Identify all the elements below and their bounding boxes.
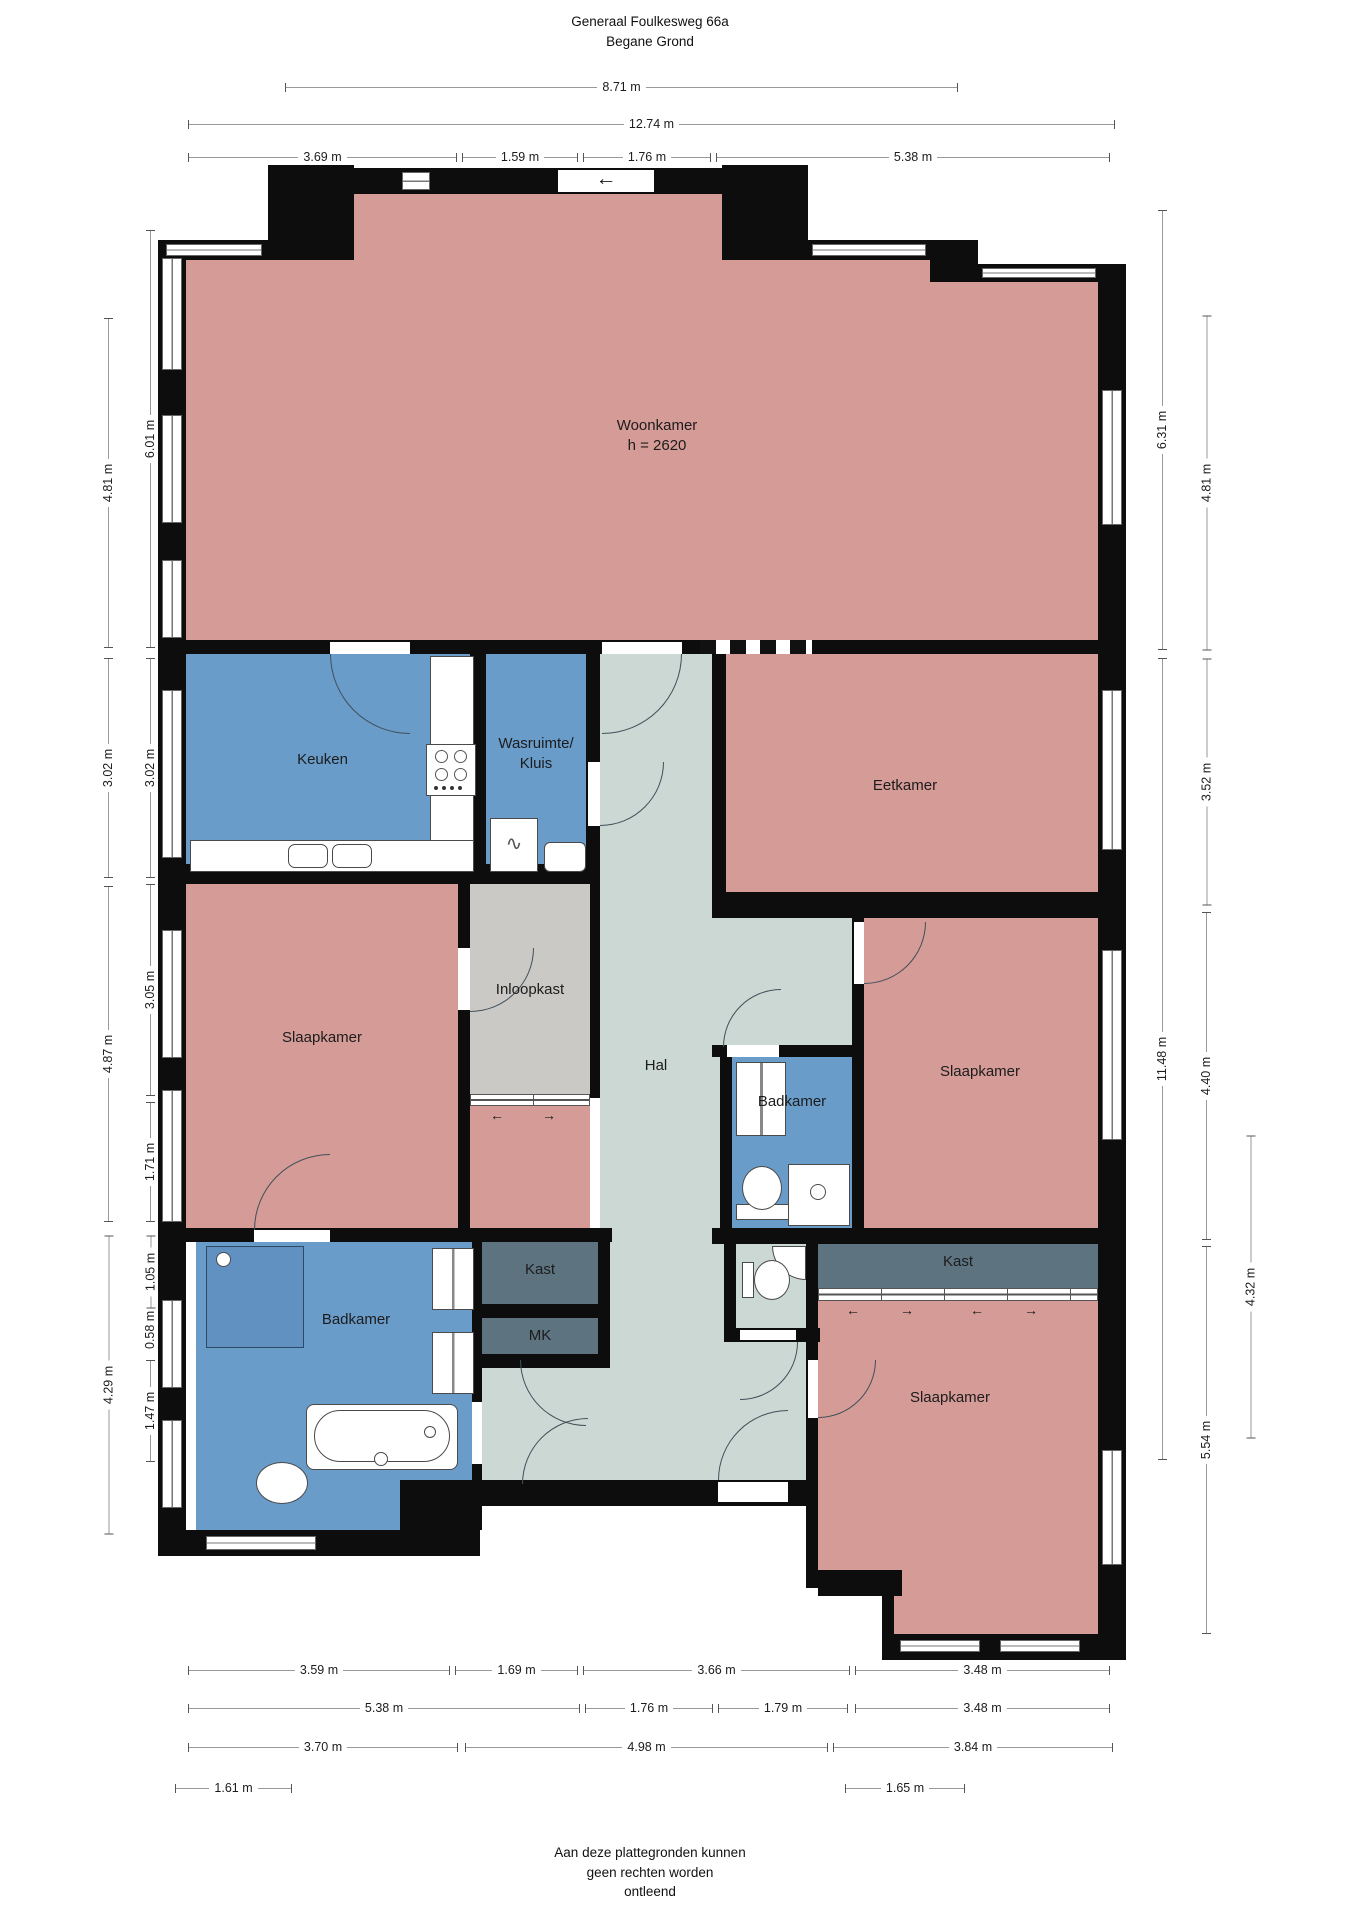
- dimension-right_inner-1: 11.48 m: [1154, 658, 1170, 1460]
- door-gap: [808, 1360, 818, 1418]
- dimension-bottom_row3-1: 4.98 m: [465, 1739, 828, 1755]
- window: [812, 244, 926, 256]
- dimension-left_outer-0: 4.81 m: [100, 318, 116, 648]
- wall: [186, 1228, 612, 1242]
- window: [162, 258, 182, 370]
- open-divider: [700, 640, 812, 654]
- sliding-door-rail: [818, 1288, 1098, 1301]
- wall: [482, 1304, 598, 1318]
- dimension-bottom_row4-1: 1.65 m: [845, 1780, 965, 1796]
- dimension-bottom_row1-0: 3.59 m: [188, 1662, 450, 1678]
- wall: [268, 165, 354, 260]
- window: [162, 690, 182, 858]
- window: [162, 1420, 182, 1508]
- dimension-right_outer-1: 3.52 m: [1198, 658, 1214, 905]
- door-gap: [602, 642, 682, 654]
- footer-disclaimer: Aan deze plattegronden kunnen geen recht…: [400, 1843, 900, 1902]
- toilet-fixture: [754, 1260, 790, 1300]
- wall: [712, 892, 1098, 918]
- dimension-bottom_row4-0: 1.61 m: [175, 1780, 292, 1796]
- room-label-hal: Hal: [616, 1056, 696, 1076]
- dimension-right_outer-0: 4.81 m: [1198, 315, 1214, 650]
- sink-fixture: [332, 844, 372, 868]
- window: [206, 1536, 316, 1550]
- room-closet-niche: [470, 1104, 590, 1228]
- dimension-right_outer-2: 4.40 m: [1198, 912, 1214, 1240]
- dimension-left_inner-2: 3.05 m: [142, 884, 158, 1096]
- stove-burners: [434, 750, 468, 781]
- shower-head-icon: [216, 1252, 231, 1267]
- wall: [400, 1480, 480, 1556]
- faucet-icon: [374, 1452, 388, 1466]
- stove-knobs: [434, 786, 462, 790]
- window: [1102, 950, 1122, 1140]
- dimension-top-2: 3.69 m: [188, 149, 457, 165]
- shower-head-icon: [810, 1184, 826, 1200]
- dimension-bottom_row2-0: 5.38 m: [188, 1700, 580, 1716]
- wall: [724, 1242, 736, 1330]
- window: [162, 1090, 182, 1222]
- window: [402, 172, 430, 190]
- dimension-left_outer-3: 4.29 m: [100, 1235, 116, 1534]
- slide-arrow-right-icon: →: [536, 1108, 562, 1122]
- sliding-door-rail: [470, 1094, 590, 1106]
- room-label-mk: MK: [482, 1326, 598, 1346]
- dimension-left_inner-1: 3.02 m: [142, 658, 158, 878]
- room-label-eetkamer: Eetkamer: [830, 776, 980, 796]
- title-address: Generaal Foulkesweg 66a: [571, 14, 729, 29]
- wall: [930, 240, 978, 282]
- slide-arrow-left-icon: ←: [484, 1108, 510, 1122]
- window: [162, 415, 182, 523]
- room-woonkamer-entry: [352, 192, 722, 256]
- door-gap: [472, 1402, 482, 1464]
- dimension-left_outer-1: 3.02 m: [100, 658, 116, 878]
- wall: [598, 1242, 610, 1362]
- dimension-bottom_row2-2: 1.79 m: [718, 1700, 848, 1716]
- title-floor: Begane Grond: [606, 34, 694, 49]
- room-label-badkamer-mid: Badkamer: [727, 1092, 857, 1112]
- door-gap: [740, 1330, 796, 1340]
- room-label-badkamer-left: Badkamer: [276, 1310, 436, 1330]
- dimension-left_inner-0: 6.01 m: [142, 230, 158, 648]
- door-gap: [718, 1482, 788, 1502]
- vanity-fixture: [432, 1332, 474, 1394]
- room-label-slaapkamer-right: Slaapkamer: [900, 1062, 1060, 1082]
- vanity-fixture: [432, 1248, 474, 1310]
- dimension-top-3: 1.59 m: [462, 149, 578, 165]
- sink-fixture: [288, 844, 328, 868]
- toilet-fixture: [742, 1262, 754, 1298]
- window: [1102, 690, 1122, 850]
- dimension-right_far-0: 4.32 m: [1242, 1135, 1258, 1438]
- dimension-top-4: 1.76 m: [583, 149, 711, 165]
- dimension-left_outer-2: 4.87 m: [100, 886, 116, 1222]
- window: [982, 268, 1096, 278]
- window: [166, 244, 262, 256]
- dimension-bottom_row2-3: 3.48 m: [855, 1700, 1110, 1716]
- toilet-fixture: [742, 1166, 782, 1210]
- window: [1000, 1640, 1080, 1652]
- page-title: Generaal Foulkesweg 66a Begane Grond: [350, 12, 950, 51]
- wall: [458, 884, 470, 1232]
- window: [162, 930, 182, 1058]
- room-label-kast-right: Kast: [818, 1252, 1098, 1272]
- wall: [712, 1228, 1098, 1244]
- floorplan-canvas: Generaal Foulkesweg 66a Begane Grond: [0, 0, 1358, 1920]
- door-gap: [458, 948, 470, 1010]
- sink-fixture: [544, 842, 586, 872]
- dimension-bottom_row2-1: 1.76 m: [585, 1700, 713, 1716]
- toilet-fixture: [256, 1462, 308, 1504]
- room-label-kast-left: Kast: [482, 1260, 598, 1280]
- window: [162, 1300, 182, 1388]
- dimension-bottom_row1-1: 1.69 m: [455, 1662, 578, 1678]
- dimension-bottom_row1-2: 3.66 m: [583, 1662, 850, 1678]
- dimension-top-1: 12.74 m: [188, 116, 1115, 132]
- slide-arrow-left-icon: ←: [964, 1303, 990, 1317]
- wall: [722, 165, 808, 260]
- dimension-top-5: 5.38 m: [716, 149, 1110, 165]
- dimension-left_inner-3: 1.71 m: [142, 1102, 158, 1222]
- wall: [712, 652, 726, 905]
- room-label-woonkamer: Woonkamer h = 2620: [532, 416, 782, 457]
- room-label-wasruimte: Wasruimte/ Kluis: [476, 734, 596, 775]
- room-slaapkamer-bottom-bay: [890, 1585, 1098, 1635]
- wall: [720, 1045, 732, 1230]
- door-gap: [330, 642, 410, 654]
- room-slaapkamer-bottom: [818, 1301, 1098, 1585]
- dimension-top-0: 8.71 m: [285, 79, 958, 95]
- slide-arrow-right-icon: →: [1018, 1303, 1044, 1317]
- dimension-bottom_row1-3: 3.48 m: [855, 1662, 1110, 1678]
- dimension-right_outer-3: 5.54 m: [1198, 1246, 1214, 1634]
- door-gap: [854, 922, 864, 984]
- dimension-right_inner-0: 6.31 m: [1154, 210, 1170, 650]
- dimension-left_inner-6: 1.47 m: [142, 1360, 158, 1462]
- bathtub-drain: [424, 1426, 436, 1438]
- boiler-fixture: ∿: [490, 818, 538, 872]
- dimension-bottom_row3-0: 3.70 m: [188, 1739, 458, 1755]
- dimension-left_inner-5: 0.58 m: [142, 1314, 158, 1354]
- dimension-bottom_row3-2: 3.84 m: [833, 1739, 1113, 1755]
- window: [900, 1640, 980, 1652]
- window: [1102, 390, 1122, 525]
- entry-arrow-icon: ←: [566, 168, 646, 189]
- room-height-note: h = 2620: [532, 436, 782, 456]
- room-label-slaapkamer-left: Slaapkamer: [242, 1028, 402, 1048]
- window: [1102, 1450, 1122, 1565]
- room-woonkamer-right: [930, 282, 1098, 652]
- room-label-keuken: Keuken: [250, 750, 395, 770]
- window: [162, 560, 182, 638]
- slide-arrow-right-icon: →: [894, 1303, 920, 1317]
- room-label-inloopkast: Inloopkast: [468, 980, 592, 1000]
- room-label-slaapkamer-bottom: Slaapkamer: [868, 1388, 1032, 1408]
- dimension-left_inner-4: 1.05 m: [142, 1235, 158, 1308]
- slide-arrow-left-icon: ←: [840, 1303, 866, 1317]
- door-gap: [254, 1230, 330, 1242]
